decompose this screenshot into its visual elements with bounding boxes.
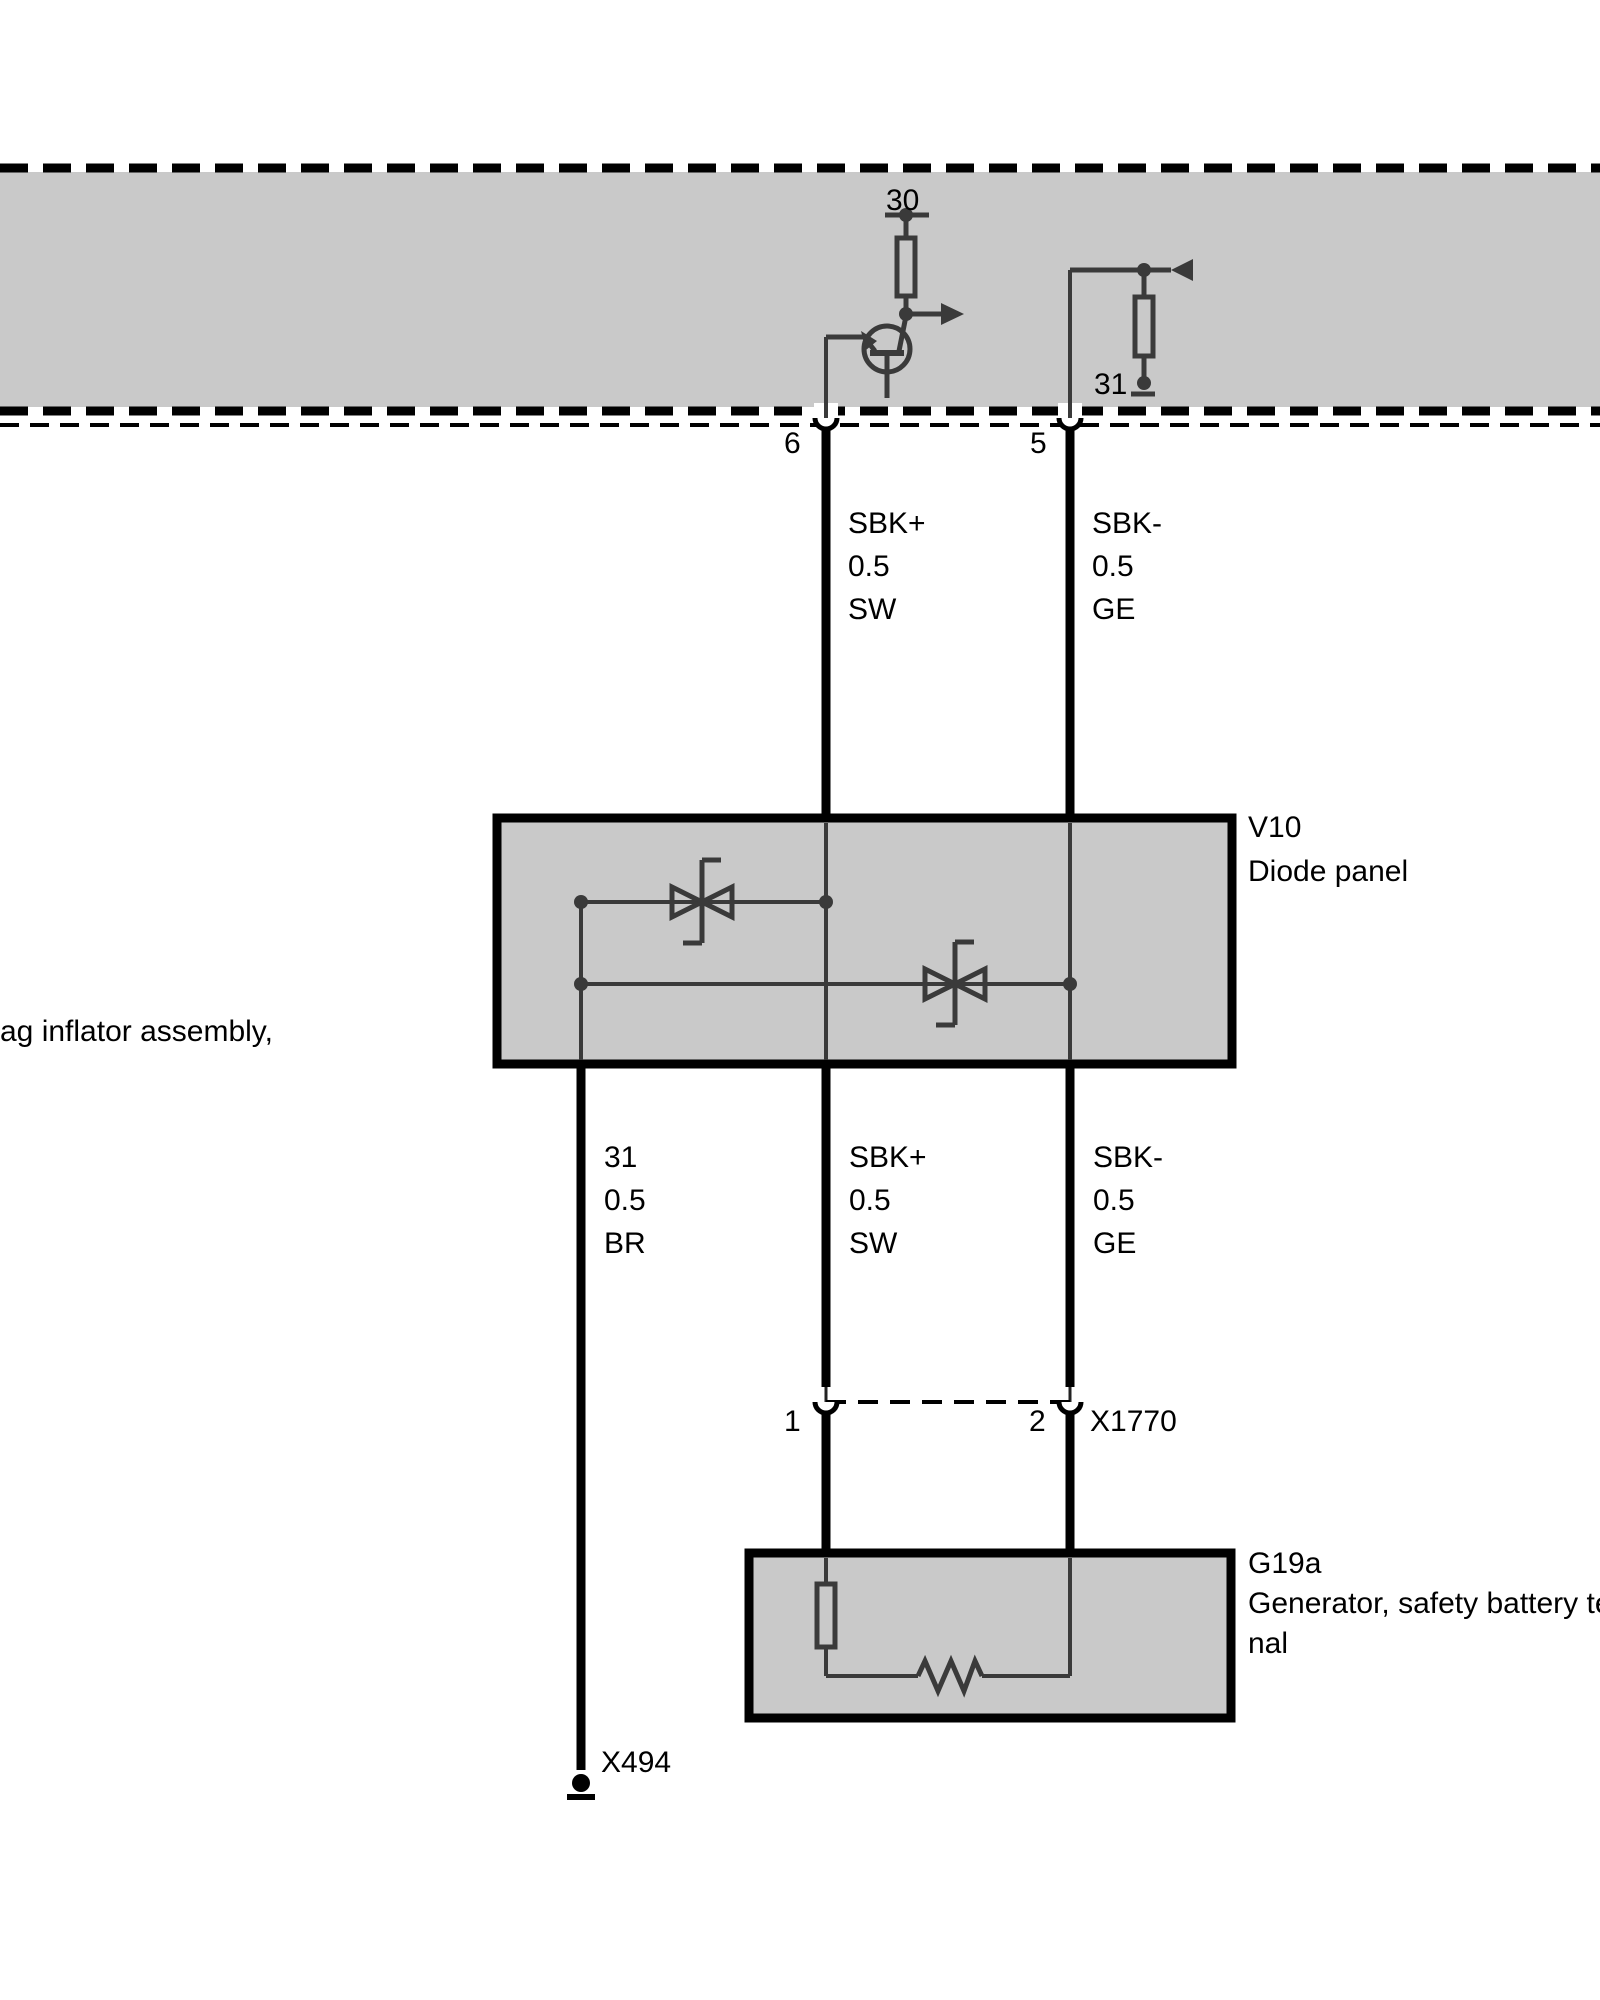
wire-gauge: 0.5 <box>1093 1179 1163 1222</box>
pin-5-connector <box>1059 418 1081 429</box>
g19a-box <box>749 1553 1231 1718</box>
pin-6-label: 6 <box>784 427 801 461</box>
component-code: G19a <box>1248 1544 1600 1584</box>
x1770-pin-2-label: 2 <box>1029 1405 1046 1439</box>
pin-5-label: 5 <box>1030 427 1047 461</box>
v10-box <box>497 818 1232 1064</box>
wire-color: GE <box>1092 588 1162 631</box>
wire-gauge: 0.5 <box>849 1179 927 1222</box>
wire-gauge: 0.5 <box>604 1179 646 1222</box>
component-code: V10 <box>1248 806 1408 850</box>
component-name-line1: Generator, safety battery termi <box>1248 1584 1600 1624</box>
g19a-label: G19a Generator, safety battery termi nal <box>1248 1544 1600 1664</box>
x1770-label: X1770 <box>1090 1405 1177 1439</box>
wire-circuit: SBK- <box>1092 502 1162 545</box>
wire-circuit: 31 <box>604 1136 646 1179</box>
component-name: Diode panel <box>1248 850 1408 894</box>
socket-icon <box>1059 1402 1081 1413</box>
wiring-diagram-page: 30 31 6 5 SBK+ 0.5 SW SBK- 0.5 GE V10 Di… <box>0 0 1600 2000</box>
wire-circuit: SBK- <box>1093 1136 1163 1179</box>
wire-circuit: SBK+ <box>849 1136 927 1179</box>
x494-ground <box>567 1774 595 1797</box>
junction-dot <box>819 895 833 909</box>
wire-label-sbk-minus-upper: SBK- 0.5 GE <box>1092 502 1162 631</box>
terminal-30-label: 30 <box>886 184 919 218</box>
x1770-pin-1-label: 1 <box>784 1405 801 1439</box>
wire-color: SW <box>849 1222 927 1265</box>
socket-icon <box>815 418 837 429</box>
terminal-31-label: 31 <box>1094 368 1127 402</box>
wire-color: BR <box>604 1222 646 1265</box>
junction-dot <box>1063 977 1077 991</box>
wire-gauge: 0.5 <box>848 545 926 588</box>
v10-label: V10 Diode panel <box>1248 806 1408 894</box>
junction-dot <box>574 977 588 991</box>
wire-color: GE <box>1093 1222 1163 1265</box>
socket-icon <box>815 1402 837 1413</box>
ground-dot-icon <box>572 1774 590 1792</box>
wire-color: SW <box>848 588 926 631</box>
wire-label-sbk-plus-upper: SBK+ 0.5 SW <box>848 502 926 631</box>
junction-dot <box>574 895 588 909</box>
wire-gauge: 0.5 <box>1092 545 1162 588</box>
wire-label-ground-31: 31 0.5 BR <box>604 1136 646 1265</box>
junction-dot <box>1137 376 1151 390</box>
component-name-line2: nal <box>1248 1624 1600 1664</box>
wire-label-sbk-plus-lower: SBK+ 0.5 SW <box>849 1136 927 1265</box>
x494-label: X494 <box>601 1746 671 1780</box>
schematic-graphics <box>0 0 1600 2000</box>
left-partial-note: ag inflator assembly, <box>0 1015 273 1049</box>
socket-icon <box>1059 418 1081 429</box>
wire-circuit: SBK+ <box>848 502 926 545</box>
wire-label-sbk-minus-lower: SBK- 0.5 GE <box>1093 1136 1163 1265</box>
control-module-band <box>0 168 1600 425</box>
pin-6-connector <box>815 418 837 429</box>
